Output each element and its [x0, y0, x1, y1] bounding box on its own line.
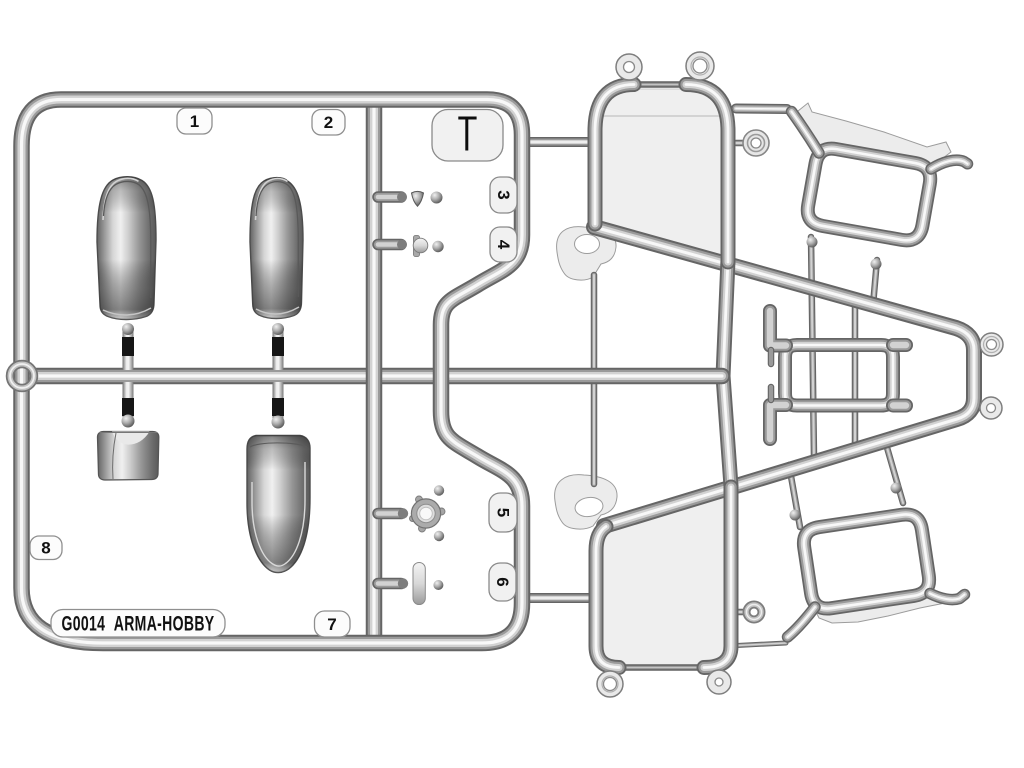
svg-text:8: 8: [41, 539, 50, 558]
svg-text:3: 3: [494, 190, 513, 199]
svg-text:2: 2: [324, 113, 333, 132]
svg-text:6: 6: [493, 577, 512, 586]
svg-text:4: 4: [494, 240, 513, 250]
svg-text:G0014 ARMA-HOBBY: G0014 ARMA-HOBBY: [62, 613, 215, 636]
svg-text:7: 7: [327, 615, 336, 634]
svg-text:5: 5: [494, 508, 513, 517]
svg-text:1: 1: [190, 112, 199, 131]
